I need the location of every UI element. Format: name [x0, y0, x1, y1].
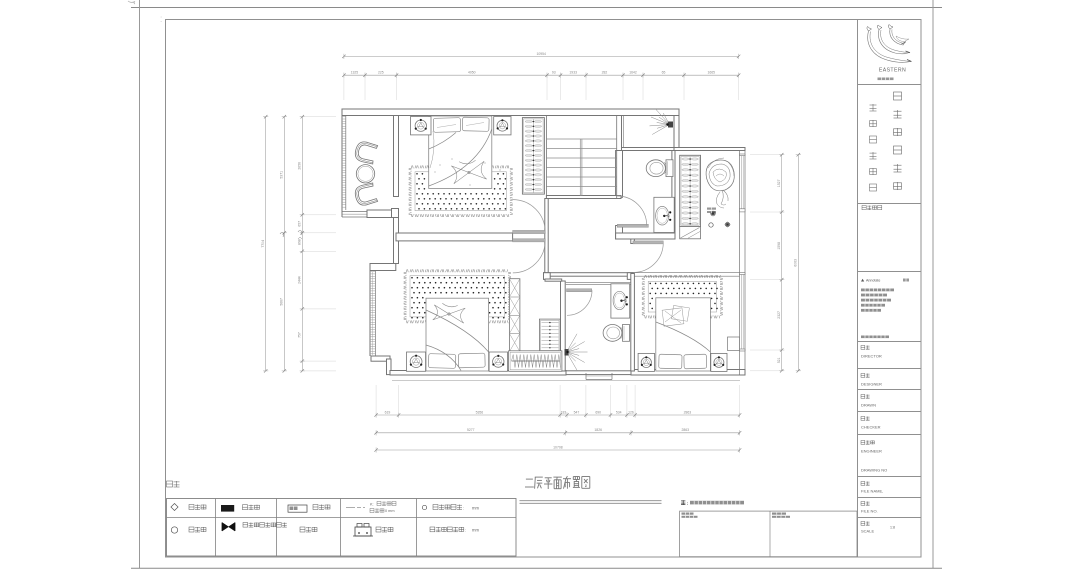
svg-text:5356: 5356 [476, 410, 484, 414]
svg-text:1933: 1933 [569, 71, 577, 75]
svg-text:1642: 1642 [629, 71, 637, 75]
svg-text:DESIGNER: DESIGNER [861, 382, 882, 387]
svg-text:4050: 4050 [468, 71, 476, 75]
svg-text:898: 898 [298, 239, 302, 245]
svg-text:521: 521 [777, 357, 781, 363]
svg-text:mm: mm [472, 528, 479, 533]
svg-text:2863: 2863 [684, 410, 692, 414]
svg-text:2327: 2327 [777, 311, 781, 319]
svg-text:1:8: 1:8 [890, 526, 895, 530]
svg-text:DRAWING NO: DRAWING NO [861, 468, 887, 473]
svg-text:EASTERN: EASTERN [879, 68, 906, 74]
svg-text:5277: 5277 [467, 428, 475, 432]
svg-text:2863: 2863 [682, 428, 690, 432]
svg-text:65: 65 [662, 71, 666, 75]
svg-text:FILE NO.: FILE NO. [861, 509, 878, 514]
svg-text:DRAWN: DRAWN [861, 403, 876, 408]
svg-text:5667: 5667 [280, 298, 284, 306]
svg-text:1598: 1598 [777, 242, 781, 250]
svg-text:0 mm: 0 mm [385, 509, 395, 513]
svg-text:534: 534 [616, 410, 622, 414]
svg-text:225: 225 [378, 71, 384, 75]
svg-text:SCALE: SCALE [861, 529, 874, 534]
svg-text:K:: K: [370, 503, 374, 507]
svg-text:FILE NAME,: FILE NAME, [861, 489, 883, 494]
svg-text:93: 93 [552, 71, 556, 75]
svg-text:10954: 10954 [536, 52, 546, 56]
svg-text:183: 183 [561, 410, 567, 414]
svg-text:ENGINEER: ENGINEER [861, 449, 882, 454]
svg-text:1826: 1826 [594, 428, 602, 432]
svg-text:547: 547 [574, 410, 580, 414]
svg-text:6063: 6063 [794, 259, 798, 267]
svg-text::: : [465, 528, 466, 533]
svg-text:2444: 2444 [298, 276, 302, 284]
svg-text:619: 619 [385, 410, 391, 414]
svg-text:126: 126 [628, 410, 634, 414]
svg-text:690: 690 [595, 410, 601, 414]
svg-text:757: 757 [298, 332, 302, 338]
svg-text:1527: 1527 [777, 179, 781, 187]
svg-text:10708: 10708 [553, 445, 563, 449]
svg-text:1325: 1325 [351, 71, 359, 75]
svg-text:2656: 2656 [298, 162, 302, 170]
svg-text:282: 282 [602, 71, 608, 75]
svg-text:7704: 7704 [261, 240, 265, 248]
svg-text::: : [463, 506, 464, 511]
svg-text:657: 657 [298, 221, 302, 227]
svg-text:CHECKER: CHECKER [861, 425, 881, 430]
svg-text:5371: 5371 [280, 171, 284, 179]
svg-text:DIRECTOR: DIRECTOR [861, 354, 882, 359]
svg-text:mm: mm [472, 506, 479, 511]
svg-text:1665: 1665 [708, 71, 716, 75]
svg-text:Annotate: Annotate [866, 279, 880, 283]
